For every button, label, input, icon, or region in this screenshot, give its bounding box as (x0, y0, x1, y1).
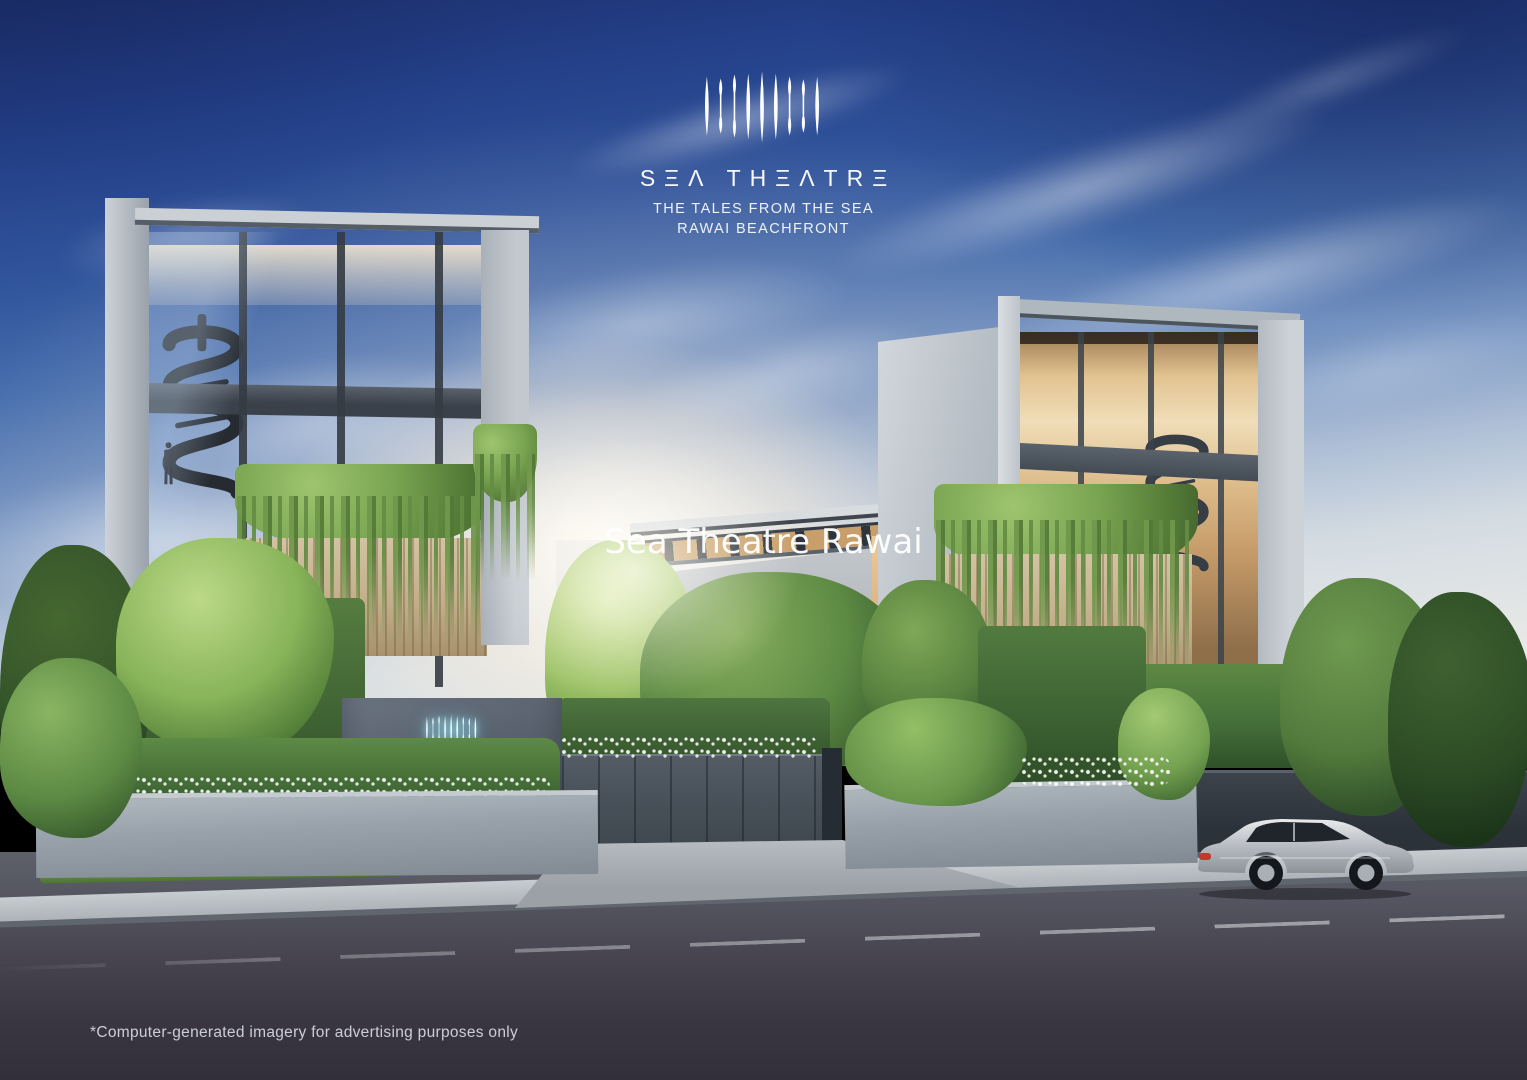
sea-theatre-logo-mark (699, 70, 829, 144)
sea-theatre-advertisement: SΞΛ THΞΛTRΞ (0, 0, 1527, 1080)
gate-pillar (822, 748, 842, 848)
left-villa-roof-slab (135, 208, 539, 233)
brand-logo-block: SΞΛ THΞΛTRΞ THE TALES FROM THE SEA RAWAI… (534, 70, 994, 237)
disclaimer-text: *Computer-generated imagery for advertis… (90, 1024, 518, 1042)
watermark-text: Sea Theatre Rawai (604, 522, 922, 562)
white-flowers-above-gate (560, 736, 818, 760)
brand-wordmark: SΞΛ THΞΛTRΞ (534, 165, 994, 192)
brand-tagline-1: THE TALES FROM THE SEA (534, 201, 994, 217)
white-flowers-right-planter (1020, 756, 1170, 786)
entrance-gate (562, 754, 824, 846)
fern-plants-right (845, 698, 1027, 806)
sun-bloom (470, 440, 800, 700)
tropical-plants-left (0, 658, 142, 838)
right-villa-roof-beam (1000, 298, 1301, 332)
brand-tagline-2: RAWAI BEACHFRONT (534, 221, 994, 237)
tree (116, 538, 334, 756)
silver-sedan-car (1190, 806, 1420, 901)
